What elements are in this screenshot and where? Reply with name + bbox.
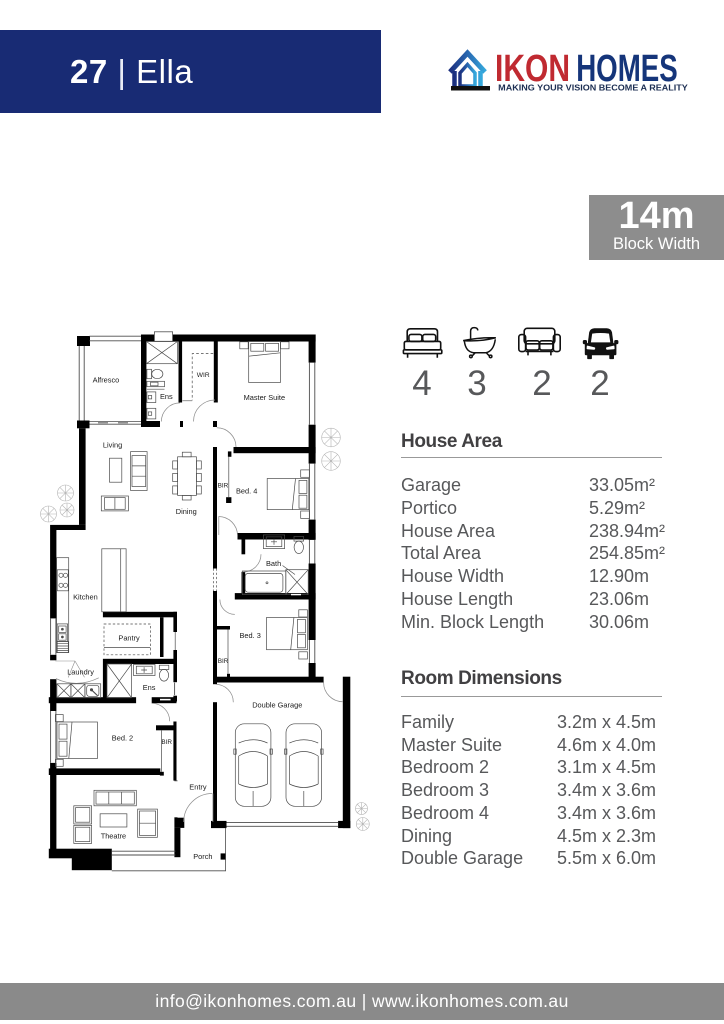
svg-text:Double Garage: Double Garage [252,701,302,710]
svg-text:Master Suite: Master Suite [244,393,286,402]
svg-text:Ens: Ens [143,683,156,692]
svg-text:Dining: Dining [176,507,197,516]
svg-text:Laundry: Laundry [67,668,94,677]
svg-text:Entry: Entry [189,783,207,792]
svg-text:MAKING YOUR VISION BECOME A RE: MAKING YOUR VISION BECOME A REALITY [498,82,688,92]
svg-text:BIR: BIR [218,483,229,490]
svg-text:Alfresco: Alfresco [93,375,120,384]
svg-text:WIR: WIR [197,372,210,379]
svg-text:Living: Living [103,440,122,449]
svg-text:Bed. 2: Bed. 2 [112,734,133,743]
svg-text:Bed. 4: Bed. 4 [236,486,257,495]
svg-text:Kitchen: Kitchen [73,592,98,601]
svg-text:Bed. 3: Bed. 3 [240,631,261,640]
svg-text:Bath: Bath [266,559,281,568]
svg-text:Ens: Ens [160,392,173,401]
svg-text:BIR: BIR [218,658,229,665]
svg-text:Theatre: Theatre [101,832,126,841]
svg-text:BIR: BIR [161,739,172,746]
svg-text:Porch: Porch [193,852,212,861]
svg-text:Pantry: Pantry [118,633,140,642]
